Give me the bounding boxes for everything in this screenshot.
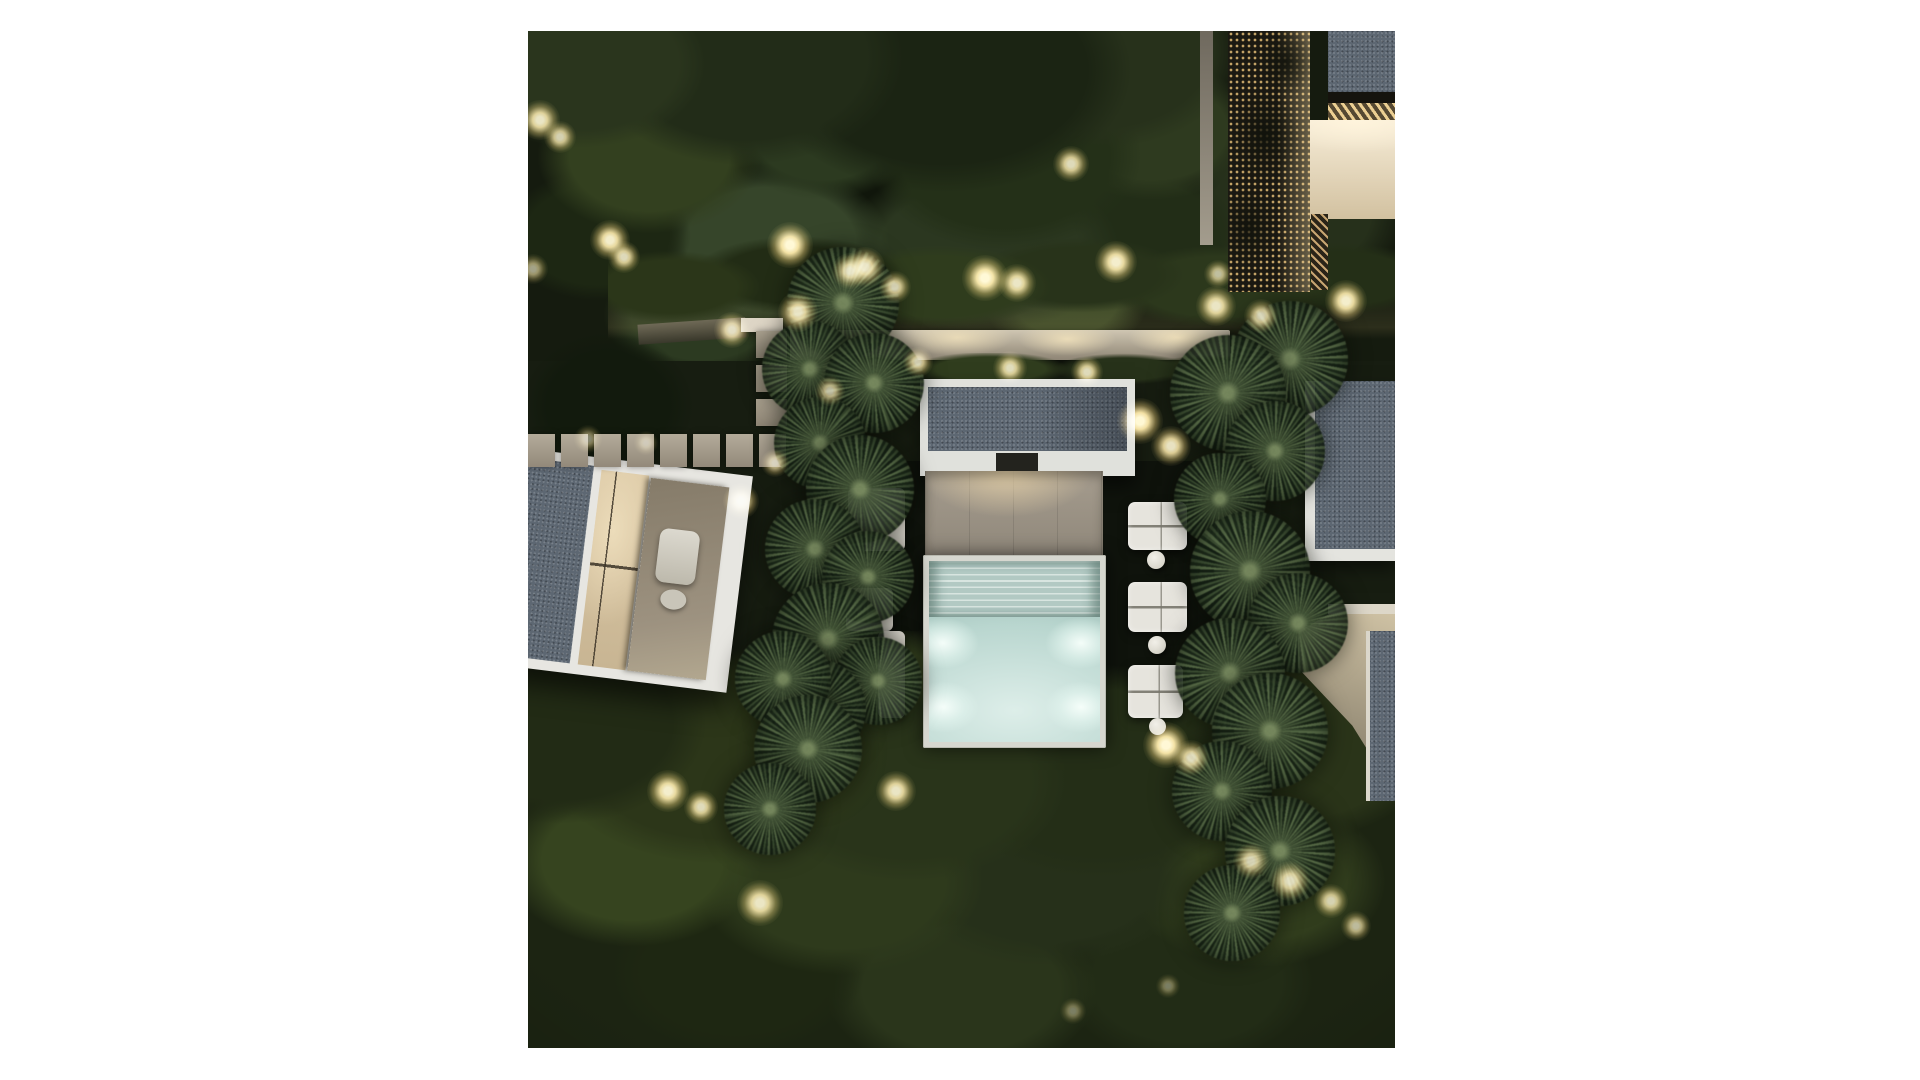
garden-light — [684, 790, 718, 824]
garden-light — [647, 770, 689, 812]
garden-light — [1341, 911, 1371, 941]
swimming-pool — [923, 555, 1106, 748]
garden-light — [778, 292, 818, 332]
page-background — [0, 0, 1920, 1080]
palm-tree — [724, 763, 816, 855]
garden-light — [1053, 146, 1089, 182]
garden-light — [879, 271, 911, 303]
sun-lounger-pair — [1128, 582, 1187, 632]
lattice-strip — [1311, 214, 1328, 290]
left-guest-house — [528, 447, 753, 692]
garden-light — [1151, 426, 1191, 466]
garden-light — [998, 264, 1036, 302]
garden-light — [993, 351, 1027, 385]
garden-light — [1314, 884, 1348, 918]
garden-light — [714, 312, 750, 348]
garden-light — [723, 483, 759, 519]
garden-light — [1244, 299, 1278, 333]
walkway-paver — [693, 434, 720, 467]
walkway-paver — [660, 434, 687, 467]
garden-light — [1095, 241, 1137, 283]
garden-light — [1196, 286, 1236, 326]
garden-light — [634, 431, 658, 455]
garden-light — [1060, 998, 1086, 1024]
lit-white-wall-top-right — [1310, 120, 1395, 219]
gravel-roof-top-right — [1328, 31, 1395, 95]
garden-light — [1270, 861, 1310, 901]
garden-light — [1156, 974, 1180, 998]
rooftop-sofa — [654, 527, 700, 585]
side-path-band — [1200, 31, 1213, 245]
garden-light — [761, 449, 789, 477]
pool-steps — [929, 561, 1100, 617]
garden-light — [767, 222, 813, 268]
tree-shadows-on-lattice — [1228, 31, 1310, 292]
pool-terrace — [925, 471, 1103, 558]
garden-light — [903, 347, 933, 377]
pavilion-gravel-roof — [928, 387, 1127, 451]
garden-light — [876, 771, 916, 811]
garden-light — [1233, 843, 1269, 879]
walkway-paver — [528, 434, 555, 467]
palm-tree — [1184, 865, 1280, 961]
walkway-paver — [726, 434, 753, 467]
right-lower-gravel-roof — [1366, 631, 1395, 801]
side-table — [1147, 551, 1165, 569]
pool-water-surface — [929, 561, 1100, 742]
garden-light — [737, 880, 783, 926]
garden-light — [1325, 280, 1367, 322]
garden-light — [815, 376, 845, 406]
garden-light — [1071, 356, 1103, 388]
garden-light — [544, 121, 576, 153]
garden-light — [574, 425, 602, 453]
garden-light — [608, 241, 640, 273]
garden-light — [1204, 260, 1232, 288]
right-building-gravel-roof — [1315, 381, 1395, 549]
side-table — [1148, 636, 1166, 654]
villa-pool-aerial-night-render — [528, 31, 1395, 1048]
pool-pavilion — [920, 379, 1135, 476]
garden-light — [1173, 740, 1209, 776]
